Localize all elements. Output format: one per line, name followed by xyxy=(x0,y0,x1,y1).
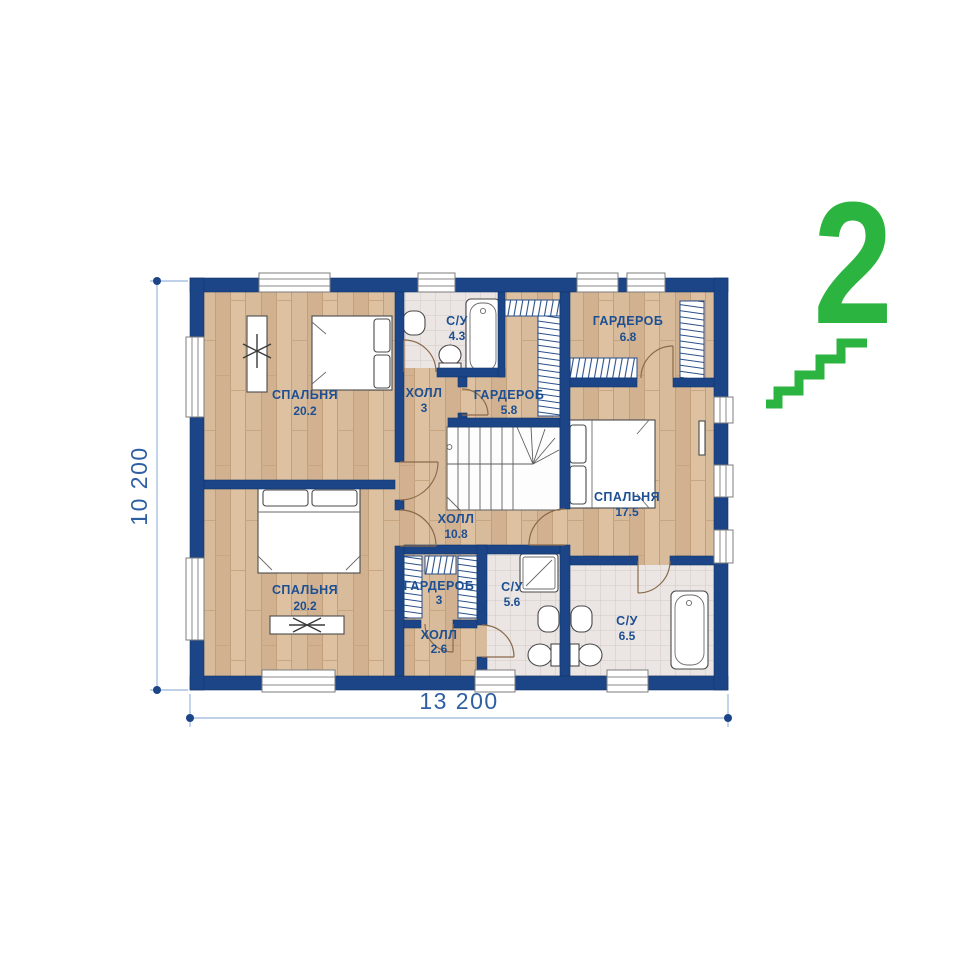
interior-wall xyxy=(670,556,714,565)
interior-wall xyxy=(570,556,638,565)
interior-wall xyxy=(560,292,570,509)
window xyxy=(714,465,733,497)
bed-bedroom-1 xyxy=(312,316,392,390)
room-area: 20.2 xyxy=(293,599,317,613)
room-name: СПАЛЬНЯ xyxy=(272,583,338,597)
sink xyxy=(403,311,425,335)
floor-plan-page: 13 200 10 200 xyxy=(0,0,960,960)
floor-badge: 2 xyxy=(766,166,893,404)
room-area: 17.5 xyxy=(615,505,639,519)
tv-panel xyxy=(699,421,705,455)
interior-wall xyxy=(395,546,404,676)
window xyxy=(186,337,204,417)
dimension-height-label: 10 200 xyxy=(126,446,152,525)
rack xyxy=(680,301,704,380)
dim-dot xyxy=(153,686,161,694)
room-label-bathroom-1: С/У 4.3 xyxy=(446,314,468,343)
window xyxy=(577,273,618,292)
window xyxy=(262,670,335,692)
room-area: 5.6 xyxy=(504,595,521,609)
window xyxy=(607,670,648,692)
interior-wall xyxy=(673,378,714,387)
room-name: СПАЛЬНЯ xyxy=(594,490,660,504)
window xyxy=(418,273,455,292)
room-name: С/У xyxy=(501,580,523,594)
room-area: 3 xyxy=(421,401,428,415)
staircase xyxy=(447,427,560,510)
bed-bedroom-2 xyxy=(258,487,360,573)
room-name: ХОЛЛ xyxy=(438,512,475,526)
interior-wall xyxy=(395,500,404,510)
room-area: 5.8 xyxy=(501,403,518,417)
toilet xyxy=(439,345,461,365)
window xyxy=(714,397,733,423)
bathtub xyxy=(466,299,500,375)
interior-wall xyxy=(404,620,421,628)
room-area: 20.2 xyxy=(293,404,317,418)
toilet xyxy=(528,644,552,666)
room-area: 6.5 xyxy=(619,629,636,643)
interior-wall xyxy=(395,292,404,462)
room-name: ХОЛЛ xyxy=(406,386,443,400)
interior-wall xyxy=(477,545,487,625)
window xyxy=(714,530,733,563)
toilet xyxy=(578,644,602,666)
dresser-bedroom-2 xyxy=(270,616,344,634)
interior-wall xyxy=(560,545,570,676)
dim-dot xyxy=(153,277,161,285)
room-name: СПАЛЬНЯ xyxy=(272,388,338,402)
room-name: ГАРДЕРОБ xyxy=(593,314,664,328)
window xyxy=(186,558,204,640)
window xyxy=(475,670,515,692)
sink xyxy=(571,606,592,632)
toilet-tank xyxy=(551,644,560,666)
interior-wall xyxy=(453,620,477,628)
interior-wall xyxy=(448,418,560,427)
bathtub xyxy=(671,591,708,669)
dim-dot xyxy=(186,714,194,722)
rack xyxy=(505,300,560,316)
sink xyxy=(538,606,559,632)
rack xyxy=(425,556,456,574)
room-area: 2.6 xyxy=(431,642,448,656)
room-name: ГАРДЕРОБ xyxy=(474,388,545,402)
room-area: 10.8 xyxy=(444,527,468,541)
window xyxy=(259,273,330,292)
room-name: С/У xyxy=(446,314,468,328)
rack xyxy=(570,358,637,378)
toilet-tank xyxy=(570,644,579,666)
room-name: ХОЛЛ xyxy=(421,628,458,642)
room-name: ГАРДЕРОБ xyxy=(404,579,475,593)
room-area: 6.8 xyxy=(620,330,637,344)
floor-plan-svg: 13 200 10 200 xyxy=(0,0,960,960)
room-area: 4.3 xyxy=(449,329,466,343)
interior-wall xyxy=(458,377,467,387)
interior-wall xyxy=(204,480,395,489)
room-name: С/У xyxy=(616,614,638,628)
room-label-bathroom-3: С/У 6.5 xyxy=(616,614,638,643)
interior-wall xyxy=(498,292,505,377)
room-label-bathroom-2: С/У 5.6 xyxy=(501,580,523,609)
dresser-bedroom-1 xyxy=(243,316,271,392)
interior-wall xyxy=(437,368,505,377)
window xyxy=(627,273,665,292)
floor-number: 2 xyxy=(813,166,892,361)
interior-wall xyxy=(570,378,637,387)
room-area: 3 xyxy=(436,593,443,607)
dim-dot xyxy=(724,714,732,722)
